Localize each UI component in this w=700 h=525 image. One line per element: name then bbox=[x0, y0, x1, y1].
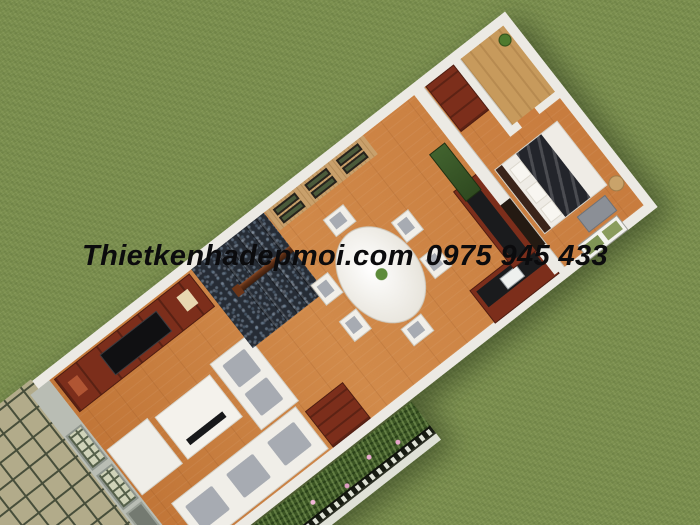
chair-seat bbox=[407, 321, 425, 339]
sofa-cushion bbox=[226, 454, 271, 499]
lawn-scene: Thietkenhadepmoi.com0975 945 433 bbox=[0, 0, 700, 525]
shelf-decor bbox=[176, 289, 198, 312]
watermark-phone: 0975 945 433 bbox=[426, 240, 608, 272]
sofa-cushion bbox=[185, 486, 230, 525]
chair-seat bbox=[397, 217, 415, 235]
sofa-cushion bbox=[222, 349, 261, 388]
chair-seat bbox=[317, 280, 335, 298]
chair-seat bbox=[329, 211, 347, 229]
watermark-site: Thietkenhadepmoi.com bbox=[82, 240, 414, 272]
sofa-cushion bbox=[267, 422, 312, 467]
watermark-text: Thietkenhadepmoi.com0975 945 433 bbox=[82, 240, 608, 273]
chair-seat bbox=[345, 316, 363, 334]
shelf-decor bbox=[68, 375, 89, 397]
sofa-cushion bbox=[244, 377, 283, 416]
